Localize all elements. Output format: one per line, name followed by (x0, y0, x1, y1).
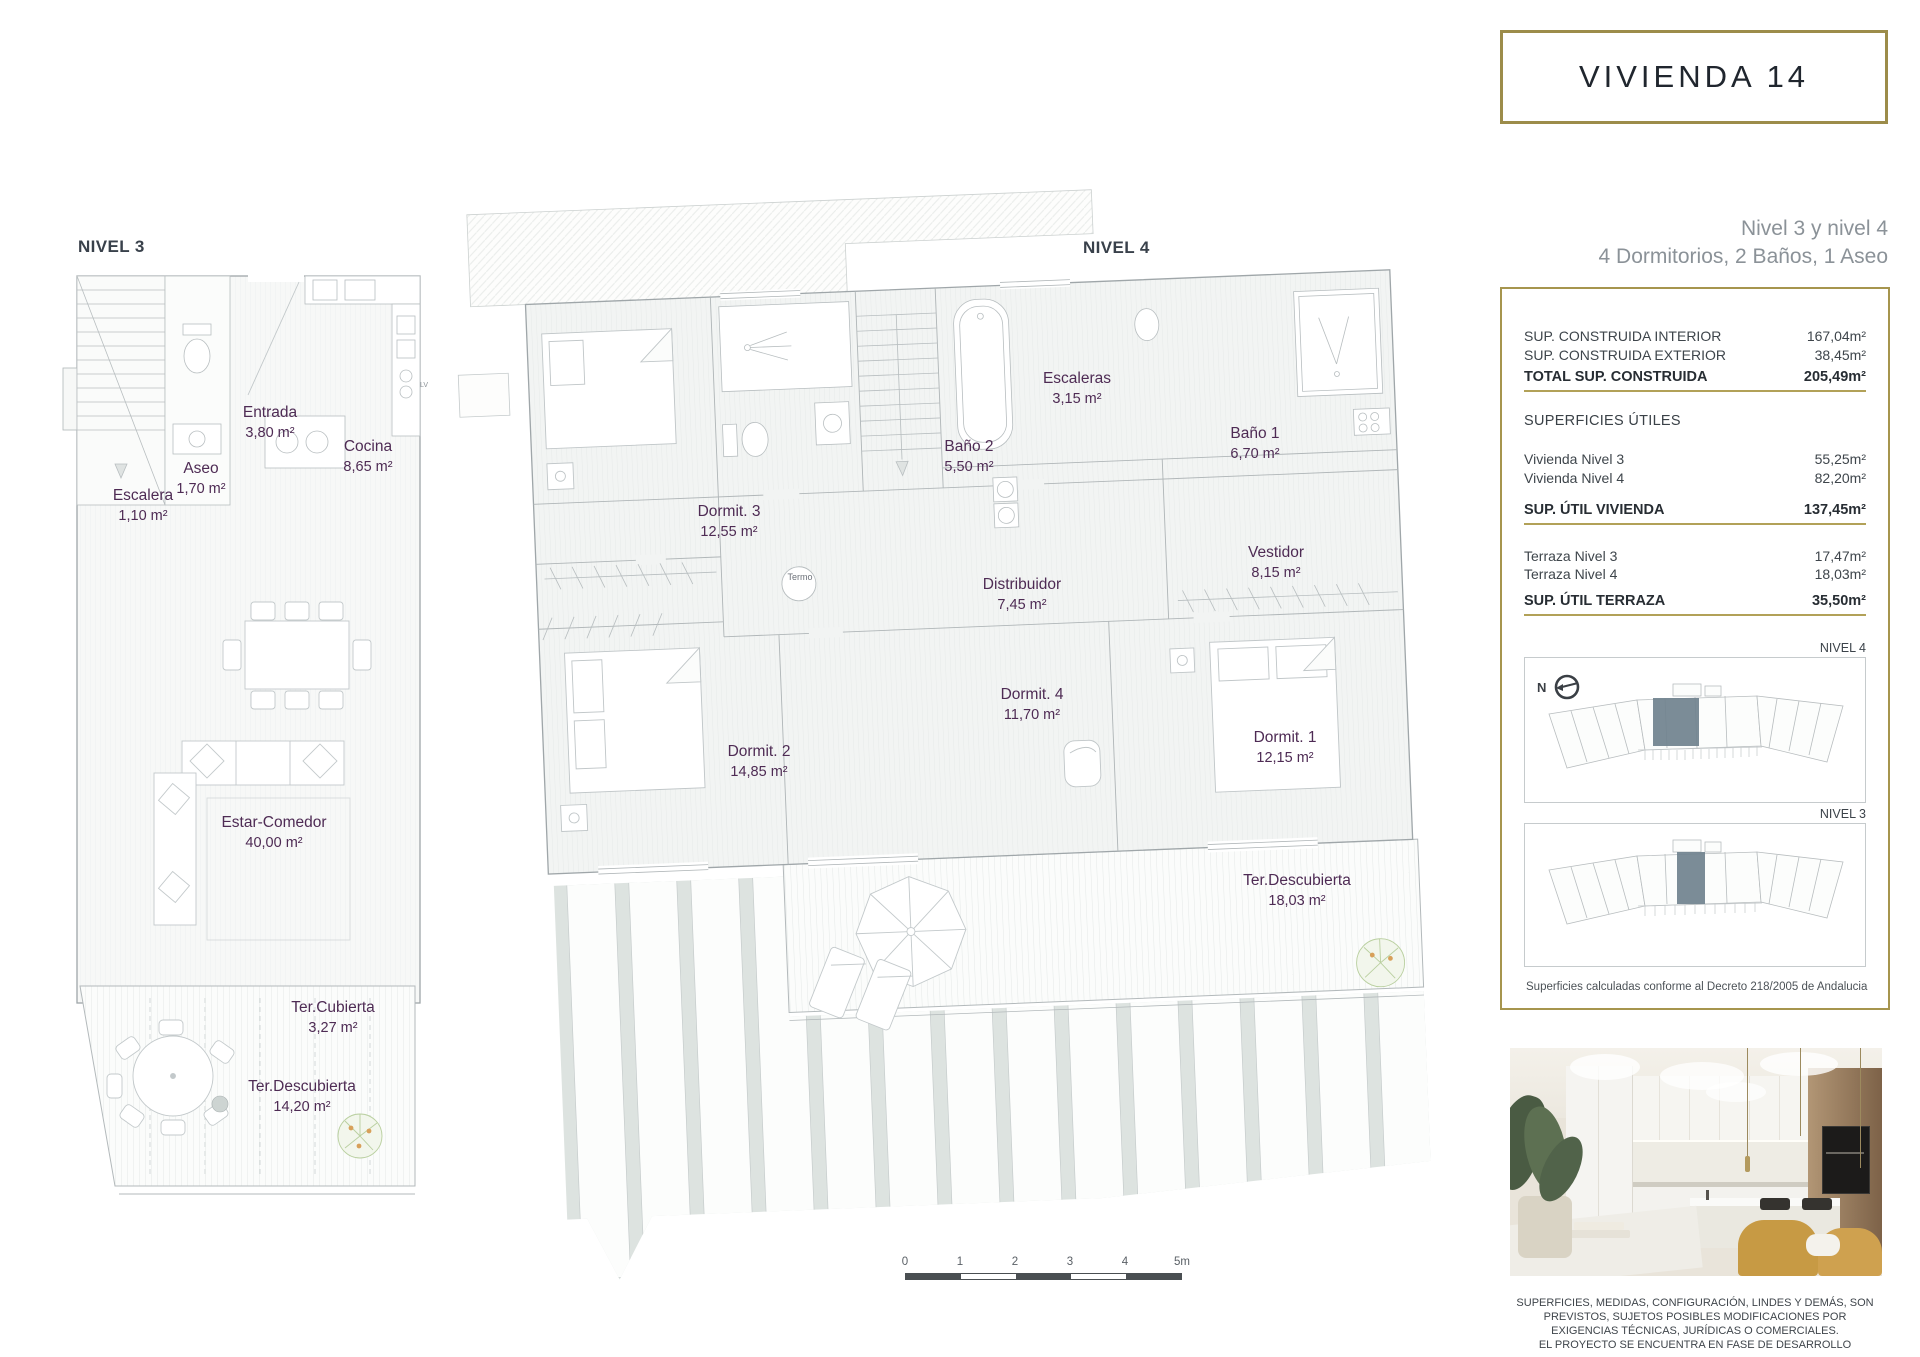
row-total-terraza: SUP. ÚTIL TERRAZA 35,50m² (1524, 592, 1866, 610)
cloud-pendant (1570, 1054, 1640, 1080)
backsplash (1630, 1140, 1810, 1184)
cushion (1806, 1234, 1840, 1256)
room-name: Dormit. 1 (1254, 729, 1317, 746)
subtitle-levels: Nivel 3 y nivel 4 (1599, 215, 1888, 243)
pendant-rod (1860, 1048, 1861, 1168)
books (1574, 1222, 1624, 1230)
areas-panel: SUP. CONSTRUIDA INTERIOR 167,04m² SUP. C… (1500, 287, 1890, 1010)
row-vivienda-n4: Vivienda Nivel 4 82,20m² (1524, 469, 1866, 487)
room-area: 11,70 m² (1001, 705, 1064, 726)
room-label-ter-cubierta: Ter.Cubierta 3,27 m² (291, 997, 375, 1039)
books (1568, 1230, 1630, 1238)
room-name: Ter.Descubierta (1243, 872, 1351, 889)
room-area: 3,15 m² (1043, 389, 1111, 410)
row-value: 55,25m² (1815, 450, 1866, 468)
row-value: 35,50m² (1812, 592, 1866, 610)
room-label-ter-descubierta-n3: Ter.Descubierta 14,20 m² (248, 1076, 356, 1118)
row-total-vivienda: SUP. ÚTIL VIVIENDA 137,45m² (1524, 501, 1866, 519)
room-area: 12,15 m² (1254, 748, 1317, 769)
room-name: Baño 1 (1230, 425, 1279, 442)
compass-icon: N (1537, 676, 1578, 698)
room-area: 8,65 m² (343, 457, 392, 478)
stool (1802, 1198, 1832, 1210)
dishwasher-label: LV (420, 382, 428, 389)
stool (1760, 1198, 1790, 1210)
room-name: Dormit. 4 (1001, 686, 1064, 703)
room-label-estar-comedor: Estar-Comedor 40,00 m² (221, 812, 326, 854)
row-construida-exterior: SUP. CONSTRUIDA EXTERIOR 38,45m² (1524, 346, 1866, 364)
keyplan-nivel3 (1524, 823, 1866, 967)
row-terraza-n3: Terraza Nivel 3 17,47m² (1524, 547, 1866, 565)
row-value: 137,45m² (1804, 501, 1866, 519)
row-value: 18,03m² (1815, 565, 1866, 583)
room-area: 14,20 m² (248, 1097, 356, 1118)
stairs (77, 276, 165, 505)
room-area: 14,85 m² (728, 762, 791, 783)
plant (338, 1114, 382, 1158)
keyplan-nivel4-drawing: N (1525, 658, 1865, 800)
row-vivienda-n3: Vivienda Nivel 3 55,25m² (1524, 450, 1866, 468)
row-value: 205,49m² (1804, 368, 1866, 386)
room-name: Aseo (183, 460, 218, 477)
room-name: Estar-Comedor (221, 814, 326, 831)
row-terraza-n4: Terraza Nivel 4 18,03m² (1524, 565, 1866, 583)
room-label-dormit4: Dormit. 4 11,70 m² (1001, 684, 1064, 726)
room-name: Dormit. 3 (698, 503, 761, 520)
subtitle-rooms: 4 Dormitorios, 2 Baños, 1 Aseo (1599, 243, 1888, 271)
cloud-pendant (1760, 1052, 1838, 1076)
plan-subtitle: Nivel 3 y nivel 4 4 Dormitorios, 2 Baños… (1599, 215, 1888, 271)
room-name: Cocina (344, 438, 392, 455)
decree-note: Superficies calculadas conforme al Decre… (1526, 981, 1867, 993)
oven-divider (1826, 1152, 1864, 1154)
row-label: SUP. ÚTIL VIVIENDA (1524, 501, 1664, 519)
plant-pot (1518, 1196, 1572, 1258)
disclaimer-line: SUPERFICIES, MEDIDAS, CONFIGURACIÓN, LIN… (1498, 1296, 1892, 1310)
utiles-header: SUPERFICIES ÚTILES (1524, 413, 1681, 429)
compass-n: N (1537, 680, 1546, 695)
room-label-termo: Termo (787, 572, 812, 582)
pendant-rod (1800, 1048, 1801, 1136)
row-label: TOTAL SUP. CONSTRUIDA (1524, 368, 1707, 386)
scale-bar: 0 1 2 3 4 5m (905, 1256, 1182, 1286)
scale-numbers: 0 1 2 3 4 5m (905, 1256, 1182, 1270)
gold-rule (1524, 390, 1866, 392)
kitchen-render-photo (1510, 1048, 1882, 1276)
room-name: Termo (787, 572, 812, 582)
room-area: 3,80 m² (243, 423, 297, 444)
keyplan-label-nivel4: NIVEL 4 (1820, 641, 1866, 655)
scale-bar-segments (905, 1273, 1182, 1280)
room-name: Ter.Cubierta (291, 999, 375, 1016)
room-label-cocina: Cocina 8,65 m² (343, 436, 392, 478)
row-value: 17,47m² (1815, 547, 1866, 565)
room-label-dormit1: Dormit. 1 12,15 m² (1254, 727, 1317, 769)
room-name: Entrada (243, 404, 297, 421)
room-area: 1,10 m² (113, 506, 173, 527)
gold-rule (1524, 614, 1866, 616)
built-in-ovens (1822, 1126, 1870, 1194)
row-total-construida: TOTAL SUP. CONSTRUIDA 205,49m² (1524, 368, 1866, 386)
row-label: Terraza Nivel 3 (1524, 547, 1617, 565)
room-label-bano2: Baño 2 5,50 m² (944, 436, 993, 478)
room-label-entrada: Entrada 3,80 m² (243, 402, 297, 444)
room-area: 18,03 m² (1243, 891, 1351, 912)
unit-title-box: VIVIENDA 14 (1500, 30, 1888, 124)
gold-rule (1524, 523, 1866, 525)
room-area: 6,70 m² (1230, 444, 1279, 465)
row-label: Vivienda Nivel 3 (1524, 450, 1624, 468)
room-area: 1,70 m² (176, 479, 225, 500)
room-label-bano1: Baño 1 6,70 m² (1230, 423, 1279, 465)
row-label: SUP. ÚTIL TERRAZA (1524, 592, 1665, 610)
highlighted-unit (1677, 852, 1705, 904)
nivel4-floorplan (468, 158, 1418, 1288)
pendant-rod (1747, 1048, 1748, 1158)
room-area: 8,15 m² (1248, 563, 1304, 584)
keyplan-label-nivel3: NIVEL 3 (1820, 807, 1866, 821)
room-label-distribuidor: Distribuidor 7,45 m² (983, 574, 1061, 616)
room-area: 3,27 m² (291, 1018, 375, 1039)
room-label-dormit3: Dormit. 3 12,55 m² (698, 501, 761, 543)
room-name: Distribuidor (983, 576, 1061, 593)
keyplan-nivel3-drawing (1525, 824, 1865, 964)
room-area: 5,50 m² (944, 457, 993, 478)
disclaimer-line: EXIGENCIAS TÉCNICAS, JURÍDICAS O COMERCI… (1498, 1324, 1892, 1338)
room-area: 7,45 m² (983, 595, 1061, 616)
legal-disclaimer: SUPERFICIES, MEDIDAS, CONFIGURACIÓN, LIN… (1498, 1296, 1892, 1352)
room-name: Escalera (113, 487, 173, 504)
row-value: 167,04m² (1807, 327, 1866, 345)
room-name: Dormit. 2 (728, 743, 791, 760)
room-label-vestidor: Vestidor 8,15 m² (1248, 542, 1304, 584)
highlighted-unit (1653, 698, 1699, 746)
row-label: Terraza Nivel 4 (1524, 565, 1617, 583)
room-label-ter-descubierta-n4: Ter.Descubierta 18,03 m² (1243, 870, 1351, 912)
room-name: Baño 2 (944, 438, 993, 455)
pendant-light (1745, 1156, 1750, 1172)
row-label: SUP. CONSTRUIDA EXTERIOR (1524, 346, 1726, 364)
row-label: SUP. CONSTRUIDA INTERIOR (1524, 327, 1721, 345)
room-label-escaleras: Escaleras 3,15 m² (1043, 368, 1111, 410)
keyplan-nivel4: N (1524, 657, 1866, 803)
room-label-dormit2: Dormit. 2 14,85 m² (728, 741, 791, 783)
disclaimer-line: EL PROYECTO SE ENCUENTRA EN FASE DE DESA… (1498, 1338, 1892, 1352)
faucet (1706, 1190, 1709, 1200)
disclaimer-line: PREVISTOS, SUJETOS POSIBLES MODIFICACION… (1498, 1310, 1892, 1324)
room-label-escalera: Escalera 1,10 m² (113, 485, 173, 527)
row-label: Vivienda Nivel 4 (1524, 469, 1624, 487)
room-name: Ter.Descubierta (248, 1078, 356, 1095)
row-value: 38,45m² (1815, 346, 1866, 364)
row-value: 82,20m² (1815, 469, 1866, 487)
cloud-pendant (1706, 1082, 1766, 1102)
row-construida-interior: SUP. CONSTRUIDA INTERIOR 167,04m² (1524, 327, 1866, 345)
room-area: 12,55 m² (698, 522, 761, 543)
unit-title: VIVIENDA 14 (1579, 59, 1809, 95)
room-area: 40,00 m² (221, 833, 326, 854)
room-name: Escaleras (1043, 370, 1111, 387)
room-name: Vestidor (1248, 544, 1304, 561)
room-label-aseo: Aseo 1,70 m² (176, 458, 225, 500)
